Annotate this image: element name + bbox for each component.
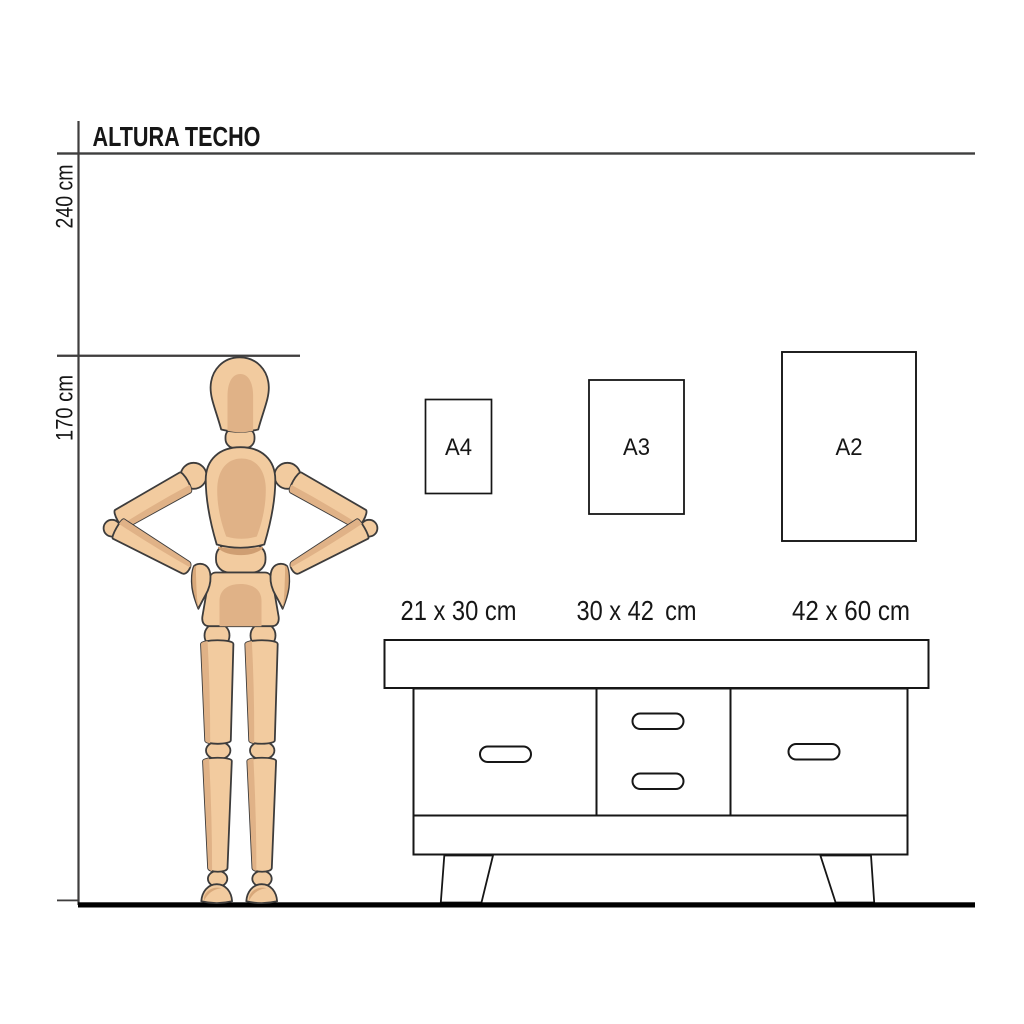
svg-text:A3: A3 [623,434,650,461]
svg-text:A2: A2 [836,434,863,461]
svg-text:170 cm: 170 cm [52,375,79,441]
svg-text:30 x 42 cm: 30 x 42 cm [577,595,697,626]
svg-text:240 cm: 240 cm [52,165,79,229]
svg-text:A4: A4 [445,434,472,461]
svg-text:21 x 30 cm: 21 x 30 cm [401,595,517,626]
svg-text:ALTURA TECHO: ALTURA TECHO [93,121,261,152]
svg-text:42 x 60 cm: 42 x 60 cm [792,595,910,626]
